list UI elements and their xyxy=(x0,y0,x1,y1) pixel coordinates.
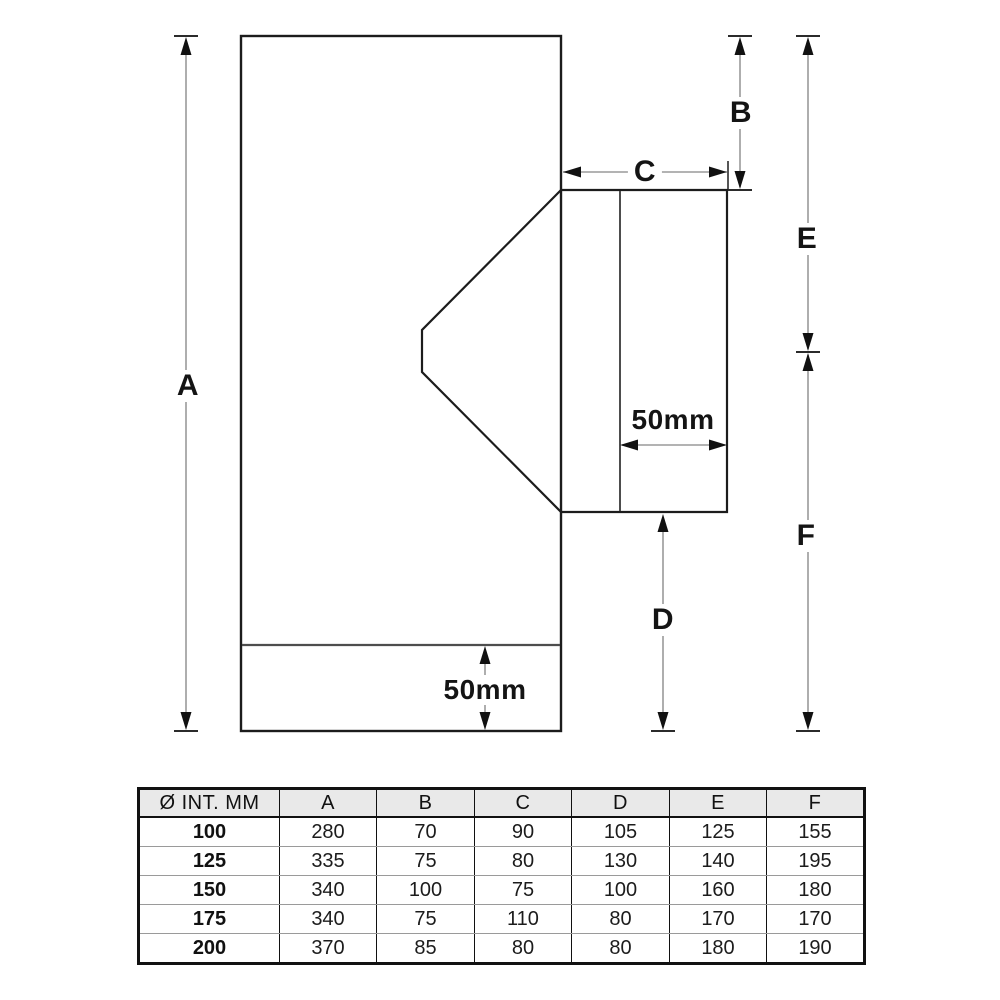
cell-value: 170 xyxy=(767,905,865,934)
dim-label-c: C xyxy=(628,156,662,188)
arrow-down-icon xyxy=(181,712,192,730)
table-row: 150 340 100 75 100 160 180 xyxy=(139,876,865,905)
header-b: B xyxy=(377,789,475,818)
dim-label-b: B xyxy=(724,97,758,129)
cell-value: 130 xyxy=(572,847,670,876)
arrow-down-icon xyxy=(735,171,746,189)
cell-value: 80 xyxy=(572,905,670,934)
dim-label-d: D xyxy=(646,604,680,636)
technical-drawing: A B C D E F 50mm 50mm xyxy=(0,0,1000,770)
cell-size: 125 xyxy=(139,847,280,876)
cell-value: 80 xyxy=(572,934,670,964)
cell-value: 335 xyxy=(280,847,377,876)
dim-label-base-50mm: 50mm xyxy=(438,675,533,705)
arrow-up-icon xyxy=(480,646,491,664)
dimensions-table: Ø INT. MM A B C D E F 100 280 70 90 105 … xyxy=(137,787,866,965)
cell-value: 170 xyxy=(670,905,767,934)
main-body-outline xyxy=(241,36,561,731)
header-f: F xyxy=(767,789,865,818)
header-c: C xyxy=(475,789,572,818)
cell-value: 75 xyxy=(377,905,475,934)
arrow-left-icon xyxy=(563,167,581,178)
arrow-up-icon xyxy=(181,37,192,55)
cell-value: 100 xyxy=(572,876,670,905)
cone-taper-outline xyxy=(422,190,561,512)
cell-value: 70 xyxy=(377,817,475,847)
cell-value: 340 xyxy=(280,876,377,905)
table-row: 100 280 70 90 105 125 155 xyxy=(139,817,865,847)
header-a: A xyxy=(280,789,377,818)
arrow-up-icon xyxy=(803,353,814,371)
cell-size: 100 xyxy=(139,817,280,847)
header-e: E xyxy=(670,789,767,818)
arrow-down-icon xyxy=(803,712,814,730)
cell-value: 80 xyxy=(475,847,572,876)
page: A B C D E F 50mm 50mm Ø INT. MM A B C D xyxy=(0,0,1000,1000)
cell-value: 280 xyxy=(280,817,377,847)
dimension-branch-50mm xyxy=(620,440,727,451)
table-row: 200 370 85 80 80 180 190 xyxy=(139,934,865,964)
drawing-canvas xyxy=(0,0,1000,770)
cell-value: 85 xyxy=(377,934,475,964)
cell-value: 180 xyxy=(767,876,865,905)
cell-value: 155 xyxy=(767,817,865,847)
dim-label-f: F xyxy=(791,520,822,552)
cell-value: 105 xyxy=(572,817,670,847)
cell-value: 340 xyxy=(280,905,377,934)
cell-value: 110 xyxy=(475,905,572,934)
arrow-up-icon xyxy=(658,514,669,532)
cell-value: 75 xyxy=(377,847,475,876)
size-table-container: Ø INT. MM A B C D E F 100 280 70 90 105 … xyxy=(137,787,863,965)
header-diameter: Ø INT. MM xyxy=(139,789,280,818)
cell-value: 180 xyxy=(670,934,767,964)
dim-label-branch-50mm: 50mm xyxy=(626,405,721,435)
arrow-up-icon xyxy=(735,37,746,55)
cell-value: 140 xyxy=(670,847,767,876)
cell-value: 160 xyxy=(670,876,767,905)
header-d: D xyxy=(572,789,670,818)
arrow-left-icon xyxy=(620,440,638,451)
arrow-down-icon xyxy=(803,333,814,351)
cell-value: 100 xyxy=(377,876,475,905)
cell-size: 150 xyxy=(139,876,280,905)
table-row: 125 335 75 80 130 140 195 xyxy=(139,847,865,876)
cell-value: 80 xyxy=(475,934,572,964)
cell-value: 195 xyxy=(767,847,865,876)
table-row: 175 340 75 110 80 170 170 xyxy=(139,905,865,934)
arrow-right-icon xyxy=(709,440,727,451)
cell-value: 370 xyxy=(280,934,377,964)
cell-value: 190 xyxy=(767,934,865,964)
cell-value: 75 xyxy=(475,876,572,905)
arrow-up-icon xyxy=(803,37,814,55)
cell-size: 175 xyxy=(139,905,280,934)
cell-value: 125 xyxy=(670,817,767,847)
dim-label-e: E xyxy=(791,223,824,255)
dim-label-a: A xyxy=(171,370,205,402)
arrow-right-icon xyxy=(709,167,727,178)
dimension-e xyxy=(796,36,820,352)
table-header-row: Ø INT. MM A B C D E F xyxy=(139,789,865,818)
cell-size: 200 xyxy=(139,934,280,964)
arrow-down-icon xyxy=(480,712,491,730)
arrow-down-icon xyxy=(658,712,669,730)
cell-value: 90 xyxy=(475,817,572,847)
branch-outlet-outline xyxy=(561,190,727,512)
